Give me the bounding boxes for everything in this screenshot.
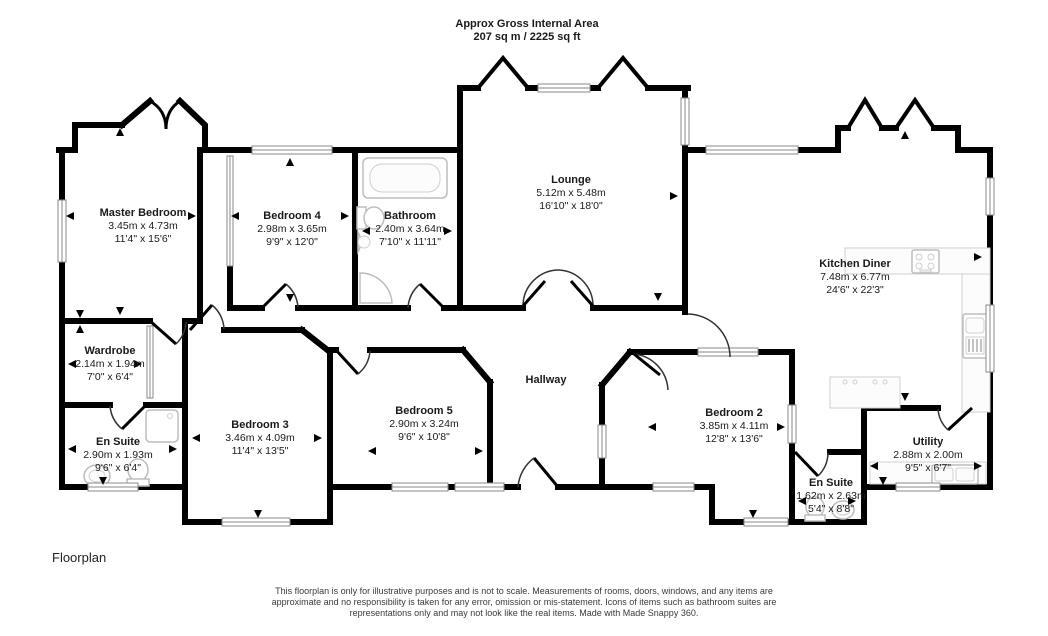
door-arc — [938, 408, 972, 430]
sliding-door — [147, 326, 153, 398]
door-arc — [190, 305, 224, 330]
room-label-wardrobe: Wardrobe 2.14m x 1.94m 7'0" x 6'4" — [75, 345, 144, 384]
sliding-door — [227, 156, 233, 266]
window — [88, 483, 138, 491]
door-arc — [795, 452, 828, 476]
room-label-bedroom-2: Bedroom 2 3.85m x 4.11m 12'8" x 13'6" — [700, 407, 769, 446]
window — [986, 305, 994, 372]
window — [653, 483, 694, 491]
window — [744, 518, 788, 526]
door-arc — [634, 354, 668, 390]
door-arc — [110, 405, 146, 429]
room-label-bedroom-3: Bedroom 3 3.46m x 4.09m 11'4" x 13'5" — [225, 419, 294, 458]
shower-icon — [360, 273, 392, 303]
room-label-kitchen-diner: Kitchen Diner 7.48m x 6.77m 24'6" x 22'3… — [819, 258, 891, 297]
hob-icon — [912, 250, 939, 273]
door-arc — [408, 284, 444, 308]
window — [681, 98, 689, 145]
window — [252, 146, 332, 154]
gross-internal-area-title: Approx Gross Internal Area 207 sq m / 22… — [455, 18, 598, 44]
window — [455, 483, 504, 491]
front-door-arc — [518, 458, 558, 487]
open-door-icon — [896, 100, 934, 128]
floorplan-drawing — [0, 0, 1048, 636]
french-door-arc — [150, 101, 180, 129]
kitchen-sink-icon — [963, 314, 988, 358]
window — [538, 84, 590, 92]
room-label-en-suite-right: En Suite 1.62m x 2.63m 5'4" x 8'8" — [796, 477, 865, 516]
floorplan-page: Approx Gross Internal Area 207 sq m / 22… — [0, 0, 1048, 636]
door-arc — [336, 350, 370, 374]
room-label-lounge: Lounge 5.12m x 5.48m 16'10" x 18'0" — [536, 174, 605, 213]
window — [698, 348, 758, 356]
window — [986, 178, 994, 215]
disclaimer-text: This floorplan is only for illustrative … — [272, 586, 777, 619]
window — [392, 483, 448, 491]
window — [58, 200, 66, 262]
door-arc — [150, 321, 186, 344]
room-label-bedroom-5: Bedroom 5 2.90m x 3.24m 9'6" x 10'8" — [389, 405, 458, 444]
window — [788, 405, 796, 443]
floorplan-caption: Floorplan — [52, 550, 106, 565]
bath-icon — [363, 158, 447, 198]
window — [706, 146, 798, 154]
window — [222, 518, 290, 526]
room-label-utility: Utility 2.88m x 2.00m 9'5" x 6'7" — [893, 436, 962, 475]
open-door-icon — [848, 100, 882, 128]
room-label-en-suite-left: En Suite 2.90m x 1.93m 9'6" x 6'4" — [83, 436, 152, 475]
title-line2: 207 sq m / 2225 sq ft — [455, 31, 598, 44]
double-door-arc — [523, 270, 593, 306]
room-label-hallway: Hallway — [526, 374, 567, 387]
room-label-master-bedroom: Master Bedroom 3.45m x 4.73m 11'4" x 15'… — [100, 207, 187, 246]
open-door-icon — [478, 58, 528, 88]
sink-icon — [358, 232, 370, 252]
title-line1: Approx Gross Internal Area — [455, 18, 598, 31]
window — [598, 425, 606, 458]
open-door-icon — [598, 58, 648, 88]
window — [896, 483, 940, 491]
room-label-bathroom: Bathroom 2.40m x 3.64m 7'10" x 11'11" — [375, 210, 444, 249]
measure-arrows — [66, 128, 982, 518]
room-label-bedroom-4: Bedroom 4 2.98m x 3.65m 9'9" x 12'0" — [257, 210, 326, 249]
